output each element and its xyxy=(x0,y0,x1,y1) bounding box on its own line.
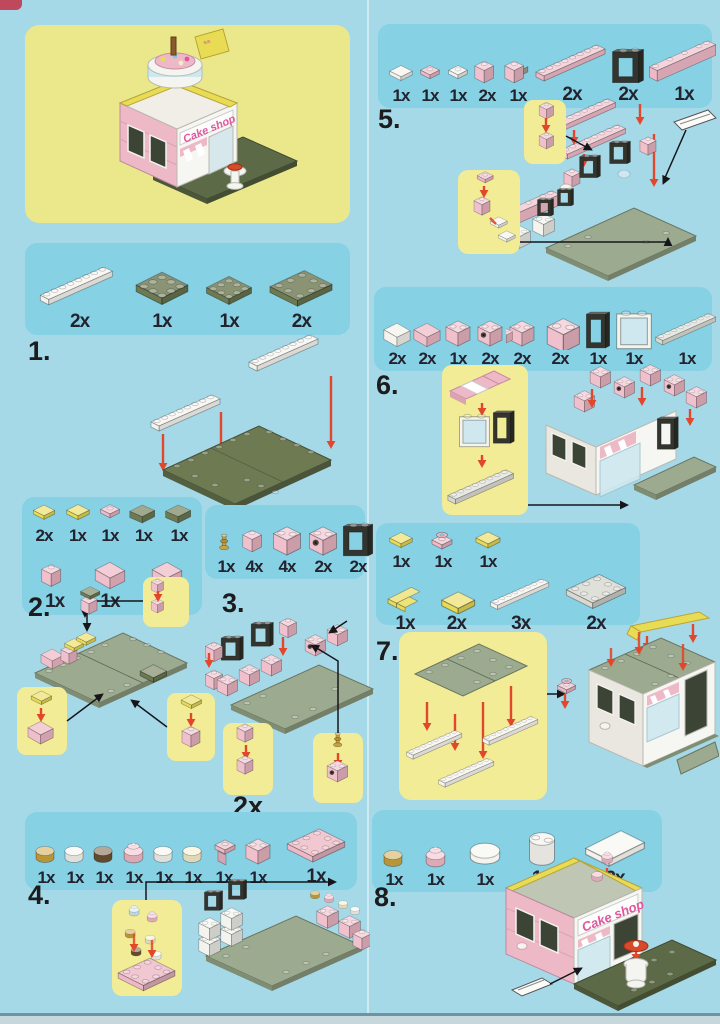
white-round-plate-icon xyxy=(444,61,472,87)
pink-brick4-icon xyxy=(538,316,582,350)
part-count: 1x xyxy=(171,527,188,544)
step6-assembly-illustration xyxy=(438,363,718,518)
part-pink-1x8-plate: 2x xyxy=(534,43,610,104)
cream-round-icon xyxy=(180,841,206,869)
part-count: 1x xyxy=(427,871,444,888)
part-pink-ring-plate: 1x xyxy=(426,527,460,570)
part-pink-corner-brick: 2x xyxy=(506,318,538,367)
gold-round-icon xyxy=(382,845,406,871)
part-olive-4x6-plate: 1x xyxy=(202,270,256,331)
part-count: 1x xyxy=(480,553,497,570)
gold-pin-icon xyxy=(213,528,239,558)
part-count: 1x xyxy=(435,553,452,570)
part-white-1x8-plate: 2x xyxy=(38,264,122,331)
white-1x8-plate-icon xyxy=(38,264,122,312)
part-count: 4x xyxy=(279,558,296,575)
hero-panel: Cake shop ≡≡ xyxy=(25,25,350,223)
part-pink-technic-brick: 2x xyxy=(474,318,506,367)
pink-brick2-icon xyxy=(242,835,274,869)
brown-round-icon xyxy=(91,839,117,869)
part-black-window-frame: 2x xyxy=(341,522,375,575)
part-count: 1x xyxy=(152,312,171,331)
pink-brick-icon xyxy=(239,524,269,558)
yellow-tile-icon xyxy=(28,501,60,527)
pink-slope-icon xyxy=(412,320,442,350)
olive-6x6-plate-icon xyxy=(131,266,193,312)
white-round-icon xyxy=(62,839,88,869)
part-count: 1x xyxy=(393,553,410,570)
part-pink-cupcake: 1x xyxy=(422,843,450,888)
white-tile-icon xyxy=(386,61,416,87)
part-olive-6x8-plate: 2x xyxy=(265,266,337,331)
black-window-frame-icon xyxy=(610,47,646,85)
black-window-frame-icon xyxy=(341,522,375,558)
white-slope-icon xyxy=(382,320,412,350)
step8-assembly-illustration: Cake shop xyxy=(476,850,720,1022)
yellow-tile-icon xyxy=(63,501,93,527)
step6-parts-panel: 2x 2x 1x 2x 2x 2x 1x 1x 1x xyxy=(374,287,712,371)
step1-parts-panel: 2x 1x 1x 2x xyxy=(25,243,350,335)
pink-1x8-brick-icon xyxy=(646,39,720,85)
step4-number: 4. xyxy=(28,880,51,911)
part-yellow-1x2-tile: 1x xyxy=(470,529,506,570)
olive-slope-icon xyxy=(128,501,160,527)
part-pink-1x8-brick: 1x xyxy=(646,39,720,104)
part-olive-slope: 1x xyxy=(128,501,160,544)
part-count: 1x xyxy=(218,558,235,575)
step7-assembly-illustration xyxy=(393,610,719,812)
step8-number: 8. xyxy=(374,882,397,913)
step5-assembly-illustration xyxy=(428,96,718,288)
part-yellow-1x1-tile: 1x xyxy=(386,529,416,570)
part-pink-1x1-plate: 1x xyxy=(95,501,125,544)
part-olive-wedge: 1x xyxy=(162,501,196,544)
pink-brick-icon xyxy=(472,57,502,87)
scan-corner-artifact xyxy=(0,0,22,10)
part-count: 2x xyxy=(292,312,311,331)
grey-6x8-plate-icon xyxy=(562,570,630,614)
part-gold-candle-pin: 1x xyxy=(213,528,239,575)
pink-ring-plate-icon xyxy=(426,527,460,553)
step1-number: 1. xyxy=(28,336,51,367)
pink-cupcake-icon xyxy=(120,837,148,869)
part-count: 2x xyxy=(389,350,406,367)
part-pink-1x4-brick: 2x xyxy=(538,316,582,367)
part-count: 4x xyxy=(246,558,263,575)
glass-panel-icon xyxy=(614,310,654,350)
part-gold-round-tile: 1x xyxy=(33,839,59,886)
step6-number: 6. xyxy=(376,370,399,401)
part-white-glass-panel: 1x xyxy=(614,310,654,367)
pink-clip-brick-icon xyxy=(502,57,534,87)
yellow-tile-icon xyxy=(386,529,416,553)
part-count: 1x xyxy=(69,527,86,544)
olive-4x6-plate-icon xyxy=(202,270,256,312)
part-pink-1x1-brick: 4x xyxy=(239,524,269,575)
part-count: 1x xyxy=(102,527,119,544)
part-count: 2x xyxy=(419,350,436,367)
olive-wedge-icon xyxy=(162,501,196,527)
part-count: 1x xyxy=(67,869,84,886)
part-pink-1x2-brick: 1x xyxy=(442,318,474,367)
part-pink-technic-brick: 2x xyxy=(305,524,341,575)
part-yellow-1x2-tile: 2x xyxy=(28,501,60,544)
pink-1x8-plate-icon xyxy=(534,43,610,85)
part-pink-1x2-brick: 4x xyxy=(269,524,305,575)
white-round-icon xyxy=(151,841,177,869)
white-1x8-plate-icon xyxy=(489,578,553,614)
part-white-round-tile: 1x xyxy=(62,839,88,886)
pink-plate-icon xyxy=(95,501,125,527)
black-door-frame-icon xyxy=(582,310,614,350)
part-count: 2x xyxy=(350,558,367,575)
finished-model-illustration: Cake shop ≡≡ xyxy=(25,25,350,223)
part-count: 2x xyxy=(70,312,89,331)
pink-cupcake-icon xyxy=(422,843,450,871)
part-count: 1x xyxy=(393,87,410,104)
part-white-slope: 2x xyxy=(382,320,412,367)
pink-technic-brick-icon xyxy=(474,318,506,350)
part-pink-slope: 2x xyxy=(412,320,442,367)
part-count: 1x xyxy=(135,527,152,544)
part-yellow-1x1-tile: 1x xyxy=(63,501,93,544)
part-white-1x2-tile: 1x xyxy=(386,61,416,104)
part-olive-6x6-plate: 1x xyxy=(131,266,193,331)
pink-brick2-icon xyxy=(442,318,474,350)
step1-assembly-illustration xyxy=(135,330,370,515)
step3-parts-panel: 1x 4x 4x 2x 2x xyxy=(205,505,365,579)
step3-assembly-illustration: 2x xyxy=(195,585,375,820)
part-count: 2x xyxy=(315,558,332,575)
pink-plate-icon xyxy=(416,61,444,87)
pink-brick2-icon xyxy=(269,524,305,558)
pink-bracket-icon xyxy=(209,837,239,869)
part-grey-1x8-plate: 1x xyxy=(654,312,720,367)
grey-1x8-plate-icon xyxy=(654,312,720,350)
step5-number: 5. xyxy=(378,104,401,135)
yellow-tile-icon xyxy=(470,529,506,553)
gold-round-icon xyxy=(33,839,59,869)
step4-assembly-illustration xyxy=(100,876,370,1021)
pink-corner-brick-icon xyxy=(506,318,538,350)
olive-6x8-plate-icon xyxy=(265,266,337,312)
part-count: 2x xyxy=(36,527,53,544)
part-count: 1x xyxy=(220,312,239,331)
pink-technic-brick-icon xyxy=(305,524,341,558)
part-black-door-frame: 1x xyxy=(582,310,614,367)
pink-2x4-plate-icon xyxy=(283,825,349,867)
step2-assembly-illustration xyxy=(15,575,217,805)
